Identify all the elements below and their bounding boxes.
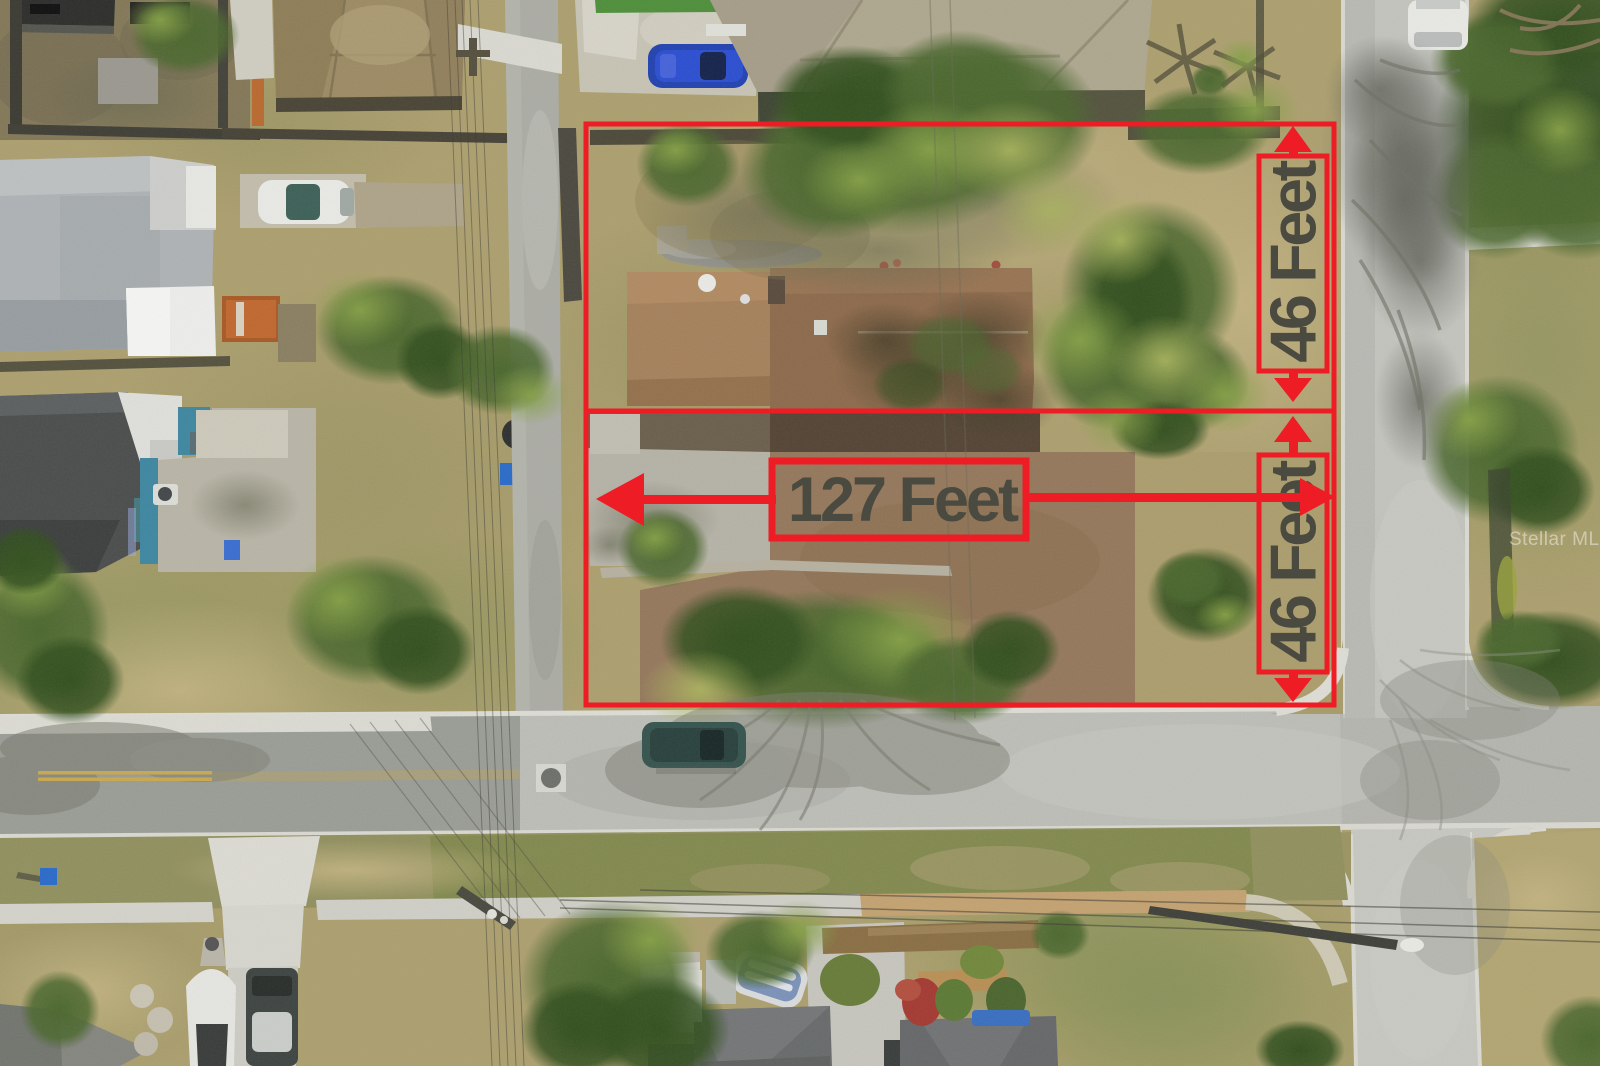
svg-text:46 Feet: 46 Feet — [1257, 160, 1330, 362]
svg-text:Stellar MLS: Stellar MLS — [1509, 529, 1600, 550]
svg-text:127 Feet: 127 Feet — [788, 465, 1019, 535]
